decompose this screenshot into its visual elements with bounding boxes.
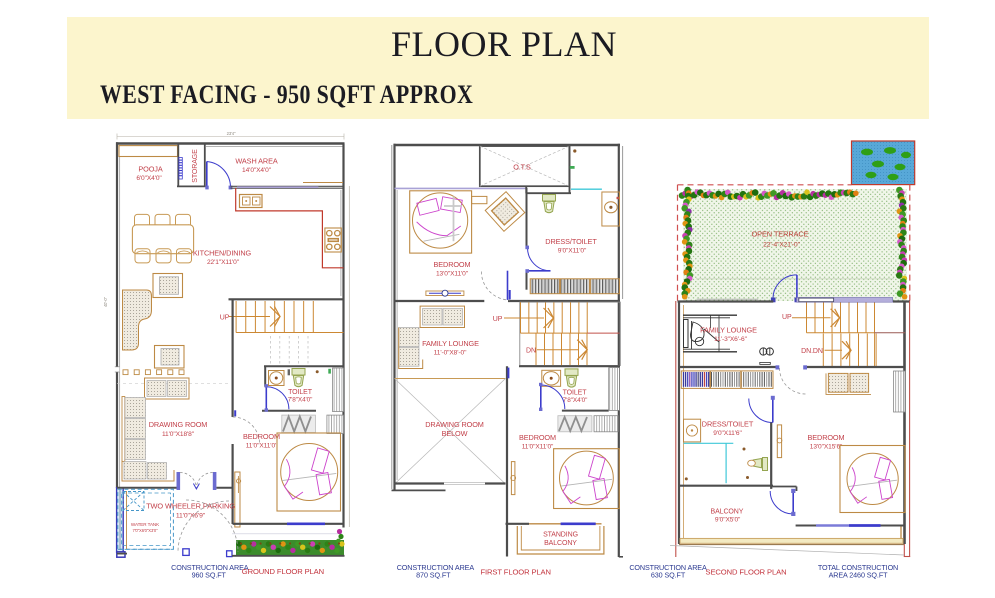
svg-text:DRAWING ROOM: DRAWING ROOM xyxy=(425,420,484,429)
svg-text:870 SQ.FT: 870 SQ.FT xyxy=(416,570,451,579)
svg-text:STORAGE: STORAGE xyxy=(192,149,199,183)
svg-text:TWO WHEELER PARKING: TWO WHEELER PARKING xyxy=(146,502,235,511)
svg-text:40'-0": 40'-0" xyxy=(103,296,108,307)
svg-text:960 SQ.FT: 960 SQ.FT xyxy=(192,570,227,579)
svg-text:DRESS/TOILET: DRESS/TOILET xyxy=(702,420,754,429)
svg-text:AREA 2460 SQ.FT: AREA 2460 SQ.FT xyxy=(829,570,889,579)
svg-text:DRESS/TOILET: DRESS/TOILET xyxy=(545,237,597,246)
svg-text:DN: DN xyxy=(526,348,536,355)
svg-text:WATER TANK: WATER TANK xyxy=(131,522,160,527)
svg-text:11'-0"X8'-0": 11'-0"X8'-0" xyxy=(434,350,467,357)
svg-text:FAMILY LOUNGE: FAMILY LOUNGE xyxy=(700,326,757,335)
svg-text:22'-4"X21'-0": 22'-4"X21'-0" xyxy=(763,242,800,249)
svg-text:11'-3"X6'-6": 11'-3"X6'-6" xyxy=(714,336,747,343)
svg-text:O.T.S: O.T.S xyxy=(513,163,531,172)
svg-text:9'0"X11'6": 9'0"X11'6" xyxy=(713,430,742,437)
svg-text:11'0"X11'0": 11'0"X11'0" xyxy=(522,443,554,450)
svg-text:GROUND FLOOR PLAN: GROUND FLOOR PLAN xyxy=(242,567,324,576)
svg-text:BEDROOM: BEDROOM xyxy=(519,433,556,442)
svg-text:KITCHEN/DINING: KITCHEN/DINING xyxy=(193,249,252,258)
svg-text:13'0"X15'6": 13'0"X15'6" xyxy=(810,443,843,450)
svg-text:DRAWING ROOM: DRAWING ROOM xyxy=(149,420,208,429)
svg-text:TOILET: TOILET xyxy=(288,389,313,396)
svg-text:BALCONY: BALCONY xyxy=(544,540,577,547)
svg-text:11'0"X11'0": 11'0"X11'0" xyxy=(246,442,278,449)
svg-text:POOJA: POOJA xyxy=(138,165,162,174)
svg-text:BEDROOM: BEDROOM xyxy=(433,260,470,269)
svg-text:7'8"X4'0": 7'8"X4'0" xyxy=(288,397,313,404)
svg-text:22'1"X11'0": 22'1"X11'0" xyxy=(207,259,240,266)
svg-text:11'0"X18'8": 11'0"X18'8" xyxy=(162,431,195,438)
svg-text:9'0"X11'0": 9'0"X11'0" xyxy=(558,247,587,254)
svg-text:UP: UP xyxy=(493,316,503,323)
svg-text:630 SQ.FT: 630 SQ.FT xyxy=(651,570,686,579)
svg-text:DN.DN: DN.DN xyxy=(801,348,823,355)
svg-text:FIRST FLOOR PLAN: FIRST FLOOR PLAN xyxy=(480,568,550,577)
svg-text:SECOND FLOOR PLAN: SECOND FLOOR PLAN xyxy=(705,568,786,577)
svg-text:WASH AREA: WASH AREA xyxy=(235,157,277,166)
svg-text:UP: UP xyxy=(220,315,230,322)
svg-text:23'4": 23'4" xyxy=(227,131,236,136)
svg-text:6'0"X4'0": 6'0"X4'0" xyxy=(136,175,162,182)
svg-text:BELOW: BELOW xyxy=(442,429,468,438)
svg-text:TOILET: TOILET xyxy=(563,390,588,397)
svg-text:OPEN TERRACE: OPEN TERRACE xyxy=(752,230,809,239)
svg-text:UP: UP xyxy=(782,314,792,321)
svg-text:STANDING: STANDING xyxy=(543,531,578,538)
svg-text:9'0"X5'0": 9'0"X5'0" xyxy=(715,517,741,524)
svg-text:BEDROOM: BEDROOM xyxy=(807,433,844,442)
svg-text:7'0"X6'0"X3'0": 7'0"X6'0"X3'0" xyxy=(132,528,158,533)
svg-text:FAMILY LOUNGE: FAMILY LOUNGE xyxy=(422,339,479,348)
svg-text:BALCONY: BALCONY xyxy=(711,508,744,515)
svg-text:7'8"X4'0": 7'8"X4'0" xyxy=(563,397,588,404)
svg-text:BEDROOM: BEDROOM xyxy=(243,432,280,441)
svg-text:13'0"X11'0": 13'0"X11'0" xyxy=(436,270,469,277)
svg-text:14'0"X4'0": 14'0"X4'0" xyxy=(242,167,272,174)
